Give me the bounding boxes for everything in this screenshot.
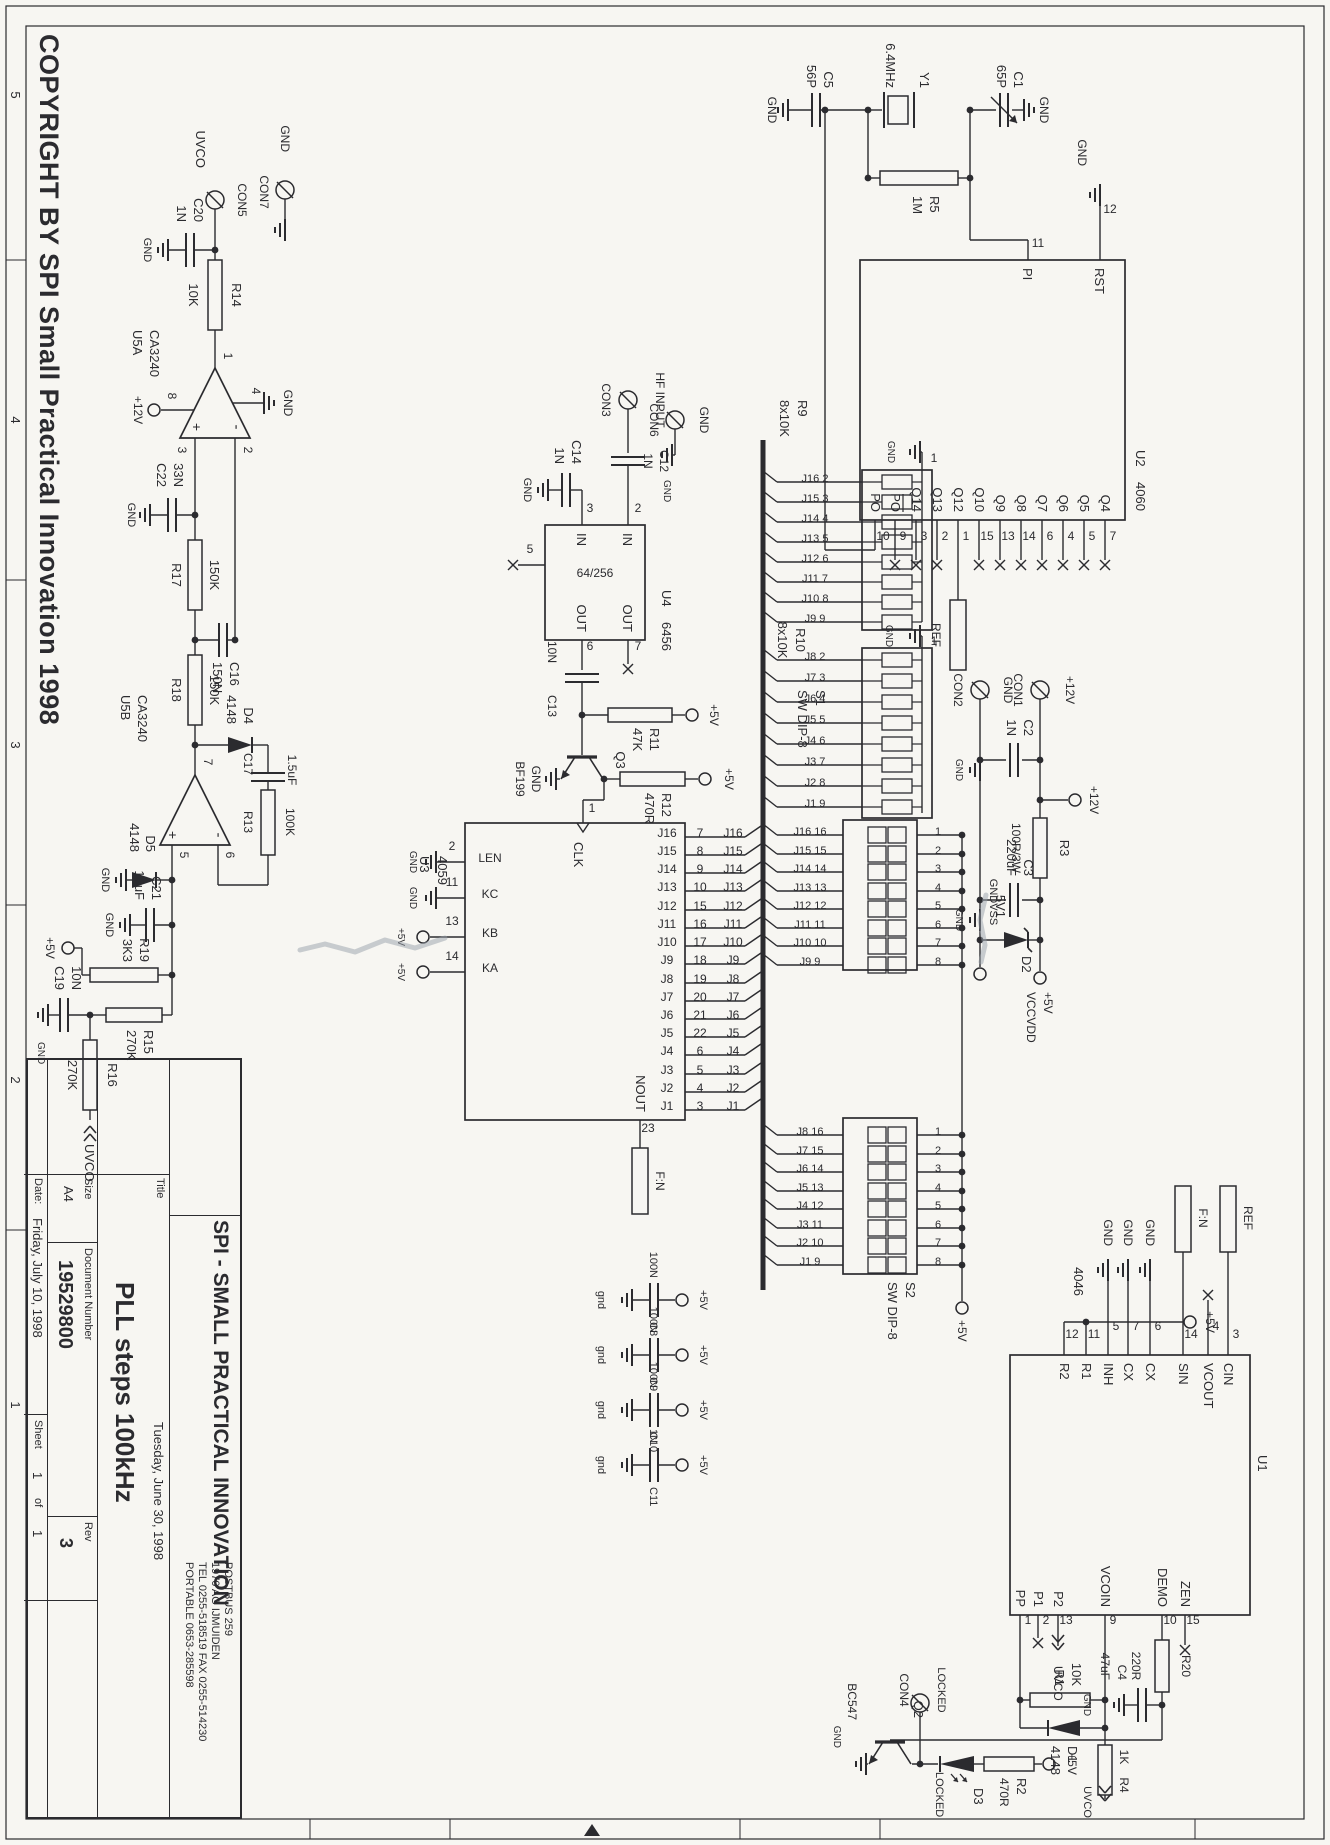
schematic-label: GND [831,1726,842,1748]
schematic-label: 33N [171,463,186,487]
schematic-label: 4148 [1048,1746,1063,1775]
schematic-label: 6 [935,1219,941,1231]
schematic-label: 4060 [1133,482,1148,511]
diode-D1 [1048,1720,1080,1736]
schematic-label: 1N [1004,719,1019,736]
junction-dot [169,922,176,929]
junction-dot [917,1761,924,1768]
part-R15 [106,1008,162,1022]
schematic-label: 3 [1233,1327,1240,1341]
part-FN-box-u1 [1175,1186,1191,1252]
schematic-label: C20 [191,198,206,222]
schematic-label: Q2 [911,1701,926,1718]
schematic-label: 1 [221,353,235,360]
s2-element [868,1183,886,1199]
schematic-label: +5V [1065,1753,1079,1775]
schematic-label: 150K [207,675,222,706]
schematic-label: J6 [661,1008,674,1022]
s1-element [868,938,886,954]
schematic-label: +12V [1087,786,1101,814]
schematic-label: C11 [647,1487,659,1506]
junction-dot [1159,1702,1166,1709]
schematic-label: J16 [657,826,677,840]
schematic-label: 1 [1025,1613,1032,1627]
schematic-label: J14 14 [793,863,826,875]
schematic-label: 7 [697,826,704,840]
size-value: A4 [61,1186,76,1202]
j-riser-diag [745,972,761,983]
diode-D4 [228,737,252,753]
schematic-label: 6 [1047,529,1054,543]
s2-element [888,1127,906,1143]
sheet-number: 1 [30,1472,45,1479]
schematic-label: Q10 [972,487,987,512]
schematic-label: C3 [1021,859,1036,876]
schematic-label: 2 [935,845,941,857]
schematic-label: C14 [569,440,584,464]
schematic-label: J8 [727,972,740,986]
schematic-label: 15 [693,899,707,913]
terminal-circle [148,404,160,416]
schematic-label: SW DIP-8 [885,1282,900,1340]
schematic-label: 3 [175,447,189,454]
docnum-value: 19529800 [53,1260,76,1349]
schematic-label: P2 [1051,1591,1066,1607]
schematic-label: 5 [527,542,534,556]
schematic-label: 3 [697,1099,704,1113]
schematic-label: 15 [980,529,994,543]
schematic-label: +5V [697,1345,709,1366]
schematic-label: J7 [661,990,674,1004]
schematic-label: P1 [1031,1591,1046,1607]
schematic-label: 220uF [1004,839,1019,876]
schematic-label: J6 [727,1008,740,1022]
junction-dot [579,712,586,719]
terminal-circle [417,966,429,978]
schematic-label: U5A [130,330,145,356]
schematic-label: 23 [641,1121,655,1135]
terminal-circle [676,1459,688,1471]
center-mark-triangle [584,1824,600,1836]
schematic-label: GND [1075,139,1089,166]
schematic-label: CON4 [897,1673,911,1707]
part-REF-box-u2 [950,600,966,670]
schematic-label: J2 10 [797,1237,824,1249]
scan-smudge [980,895,986,962]
s2-element [888,1164,906,1180]
j-riser-diag [745,1026,761,1037]
schematic-label: 1N [641,453,655,468]
schematic-label: 6 [697,1044,704,1058]
schematic-label: 6 [935,919,941,931]
schematic-label: 11 [1032,236,1045,250]
diode-D2 [1004,932,1028,948]
terminal-circle [1034,972,1046,984]
schematic-label: 5 [1089,529,1096,543]
schematic-label: 8 [935,956,941,968]
s1-element [888,901,906,917]
schematic-label: ZEN [1178,1581,1193,1607]
zener-wing [1028,948,1032,952]
schematic-label: KA [482,961,498,975]
schematic-label: 1 [931,451,938,465]
schematic-label: 10uF [132,870,147,900]
schematic-label: J10 [657,935,677,949]
schematic-label: D5 [143,835,158,852]
schematic-label: 1 [935,826,941,838]
part-FN-box-u3 [632,1148,648,1214]
schematic-label: 7 [935,1237,941,1249]
schematic-label: 12 [1065,1327,1079,1341]
schematic-label: 9 [900,529,907,543]
schematic-label: +5V [395,963,406,981]
schematic-label: GND [281,390,295,417]
schematic-label: Q8 [1014,495,1029,512]
schematic-label: 64/256 [577,566,614,580]
schematic-label: 1 [935,1126,941,1138]
schematic-label: GNDVSS [987,879,999,925]
schematic-label: 16 [693,917,707,931]
schematic-label: U1 [1255,1455,1270,1472]
schematic-label: D4 [241,707,256,724]
terminal-circle [62,942,74,954]
terminal-circle [417,931,429,943]
schematic-label: J11 11 [794,919,825,931]
junction-dot [192,637,199,644]
schematic-label: J12 [657,899,677,913]
schematic-label: gnd [595,1291,607,1309]
s1-element [868,883,886,899]
schematic-label: REF [1241,1206,1255,1230]
schematic-label: C21 [149,876,164,900]
schematic-label: 10 [876,529,890,543]
schematic-label: DEMO [1155,1568,1170,1607]
schematic-label: J12 6 [802,553,829,565]
junction-dot [977,757,984,764]
s1-element [888,883,906,899]
schematic-label: C13 [545,695,559,717]
schematic-label: 8 [935,1256,941,1268]
net-chevron [1052,1635,1058,1642]
schematic-label: 14 [1184,1327,1198,1341]
address-line2: 1970 AG IJMUIDEN [208,1562,221,1741]
schematic-label: GND [953,759,964,781]
schematic-label: J1 9 [805,798,826,810]
schematic-label: 2 [942,529,949,543]
schematic-landscape: Q47Q55Q64Q76Q814Q913Q1015Q121Q132Q143PO9… [0,0,1330,1845]
s2-element [888,1220,906,1236]
net-chevron [1052,1643,1058,1650]
part-R20 [1155,1640,1169,1692]
j-riser-diag [745,1099,761,1110]
printed-date: Tuesday, June 30, 1998 [151,1422,166,1560]
schematic-label: Q3 [613,751,628,768]
schematic-label: 1 [8,1401,23,1408]
schematic-label: GND [1121,1219,1135,1246]
schematic-label: 7 [935,937,941,949]
schematic-label: R12 [659,793,674,817]
junction-dot [1017,1697,1024,1704]
schematic-label: U2 [1133,450,1148,467]
schematic-label: J1 [661,1099,674,1113]
drawing-title: PLL steps 100kHz [109,1282,140,1503]
junction-dot [169,972,176,979]
schematic-label: 4046 [1071,1267,1086,1296]
part-R18 [188,655,202,725]
terminal-circle [956,1302,968,1314]
schematic-label: INH [1101,1363,1116,1385]
s2-element [868,1146,886,1162]
s1-element [868,920,886,936]
schematic-label: 13 [1001,529,1015,543]
schematic-label: 13 [1059,1613,1073,1627]
schematic-label: J13 5 [802,533,829,545]
schematic-label: 10N [69,966,84,990]
rev-value: 3 [55,1538,76,1548]
s1-element [868,864,886,880]
s1-element [888,938,906,954]
s2-element [868,1238,886,1254]
schematic-label: 2 [1043,1613,1050,1627]
schematic-label: C19 [52,966,67,990]
schematic-label: 56P [804,65,819,88]
net-chevron [1099,1786,1105,1793]
schematic-label: 4148 [224,695,239,724]
schematic-label: J9 9 [800,956,821,968]
schematic-label: 10K [186,283,201,306]
r10-element [882,653,912,667]
junction-dot [1083,1319,1090,1326]
schematic-label: PO [868,493,883,512]
schematic-label: +5V [697,1400,709,1421]
schematic-label: 7 [1110,529,1117,543]
schematic-label: 20 [693,990,707,1004]
j-riser-diag [745,917,761,928]
schematic-label: Q12 [951,487,966,512]
scanned-schematic-page: Q47Q55Q64Q76Q814Q913Q1015Q121Q132Q143PO9… [0,0,1330,1845]
schematic-label: 5 [1113,1319,1120,1333]
schematic-label: PI [1020,268,1035,280]
schematic-label: R1 [1079,1363,1094,1380]
rev-label: Rev [82,1522,94,1542]
schematic-label: C4 [1115,1665,1129,1681]
junction-dot [865,175,872,182]
schematic-label: J13 13 [793,882,826,894]
schematic-label: GND [529,766,543,793]
schematic-label: 6 [1155,1319,1162,1333]
schematic-label: 10 [1163,1613,1177,1627]
schematic-label: 6 [587,639,594,653]
schematic-label: Q14 [909,487,924,512]
r10-element [882,716,912,730]
schematic-label: OUT [574,605,589,633]
s2-element [888,1238,906,1254]
schematic-label: 1.5uF [285,755,299,786]
schematic-label: F:N [653,1171,667,1190]
terminal-circle [974,968,986,980]
sheet-total: 1 [30,1530,45,1537]
schematic-label: 4 [697,1081,704,1095]
junction-dot [865,107,872,114]
schematic-label: 4148 [127,823,142,852]
schematic-label: 65P [994,65,1009,88]
schematic-label: BF199 [513,761,527,797]
schematic-label: J11 7 [802,573,828,585]
schematic-label: J10 10 [793,937,826,949]
schematic-label: R13 [241,811,255,833]
schematic-label: +12V [1063,676,1077,704]
schematic-label: GND [1101,1219,1115,1246]
r9-element [882,475,912,489]
schematic-label: LOCKED [933,1772,945,1817]
schematic-label: C2 [1021,719,1036,736]
schematic-label: J15 [723,844,743,858]
schematic-label: 2 [935,1145,941,1157]
schematic-label: J10 [723,935,743,949]
schematic-label: 1N [174,205,189,222]
junction-dot [232,637,239,644]
schematic-label: RST [1092,268,1107,294]
schematic-label: 10K [1069,1663,1084,1686]
schematic-label: 8 [165,393,179,400]
s2-element [888,1183,906,1199]
schematic-label: R18 [169,678,184,702]
schematic-label: 22 [693,1026,707,1040]
schematic-label: 100N [647,1362,659,1388]
schematic-label: gnd [595,1346,607,1364]
schematic-label: J3 7 [805,756,826,768]
j-riser-diag [745,826,761,837]
schematic-label: J10 8 [802,593,829,605]
schematic-label: J14 [723,862,743,876]
schematic-label: S1 [813,690,828,706]
address-line4: PORTABLE 0653-285598 [182,1562,195,1741]
schematic-label: U5B [118,695,133,720]
schematic-label: CON2 [951,673,965,707]
junction-dot [1037,937,1044,944]
schematic-label: 100N [647,1252,659,1278]
schematic-label: J7 15 [797,1145,824,1157]
part-R5 [880,171,958,185]
schematic-label: U3 [417,856,432,873]
terminal-circle [676,1404,688,1416]
schematic-label: Q6 [1056,495,1071,512]
schematic-label: 19 [693,972,707,986]
schematic-label: J3 [727,1063,740,1077]
schematic-label: CON6 [647,403,661,437]
s1-element [868,901,886,917]
schematic-label: J9 [727,953,740,967]
schematic-label: R15 [141,1030,156,1054]
schematic-label: 3 [8,741,23,748]
schematic-label: J15 3 [802,493,829,505]
junction-dot [822,107,829,114]
schematic-label: Q9 [993,495,1008,512]
schematic-label: gnd [595,1456,607,1474]
part-R19 [90,968,158,982]
schematic-label: GND [661,480,672,502]
schematic-label: 3 [921,529,928,543]
schematic-label: 14 [445,949,459,963]
date-label: Date: [32,1178,44,1204]
diode-D3 [940,1756,974,1772]
schematic-label: F:N [1196,1208,1210,1227]
schematic-label: +5V [955,1320,969,1342]
schematic-label: J13 [657,880,677,894]
schematic-label: 220R [1129,1652,1143,1681]
schematic-label: 4 [935,882,941,894]
s2-element [868,1127,886,1143]
schematic-label: CON5 [235,183,249,217]
schematic-label: J7 [727,990,740,1004]
schematic-label: R4 [1117,1777,1131,1793]
schematic-label: R10 [793,628,808,652]
schematic-label: GND [1037,97,1051,124]
schematic-label: GND [1081,1694,1092,1716]
schematic-label: 3 [587,501,594,515]
schematic-label: 8 [697,844,704,858]
schematic-label: J8 2 [805,651,826,663]
s2-element [868,1257,886,1273]
schematic-label: CLK [571,842,586,868]
junction-dot [1037,757,1044,764]
schematic-label: J9 9 [805,613,826,625]
schematic-label: GND [103,913,115,938]
schematic-label: GND [99,868,111,893]
schematic-label: BC547 [845,1683,859,1720]
schematic-label: C1 [1011,71,1026,88]
schematic-label: CON3 [599,383,613,417]
schematic-label: + [189,423,205,431]
schematic-label: J1 9 [800,1256,821,1268]
j-riser-diag [745,1044,761,1055]
schematic-label: 2 [241,447,255,454]
schematic-label: 6456 [659,622,674,651]
schematic-label: 2 [635,501,642,515]
schematic-label: 5 [8,91,23,98]
schematic-label: 3 [935,863,941,875]
schematic-label: 13 [445,914,459,928]
schematic-label: GND [125,503,137,528]
schematic-label: J5 [727,1026,740,1040]
schematic-label: UVCO [193,130,208,168]
j-riser-diag [745,990,761,1001]
schematic-label: 8x10K [777,400,792,437]
part-R17 [188,540,202,610]
clk-wedge [577,823,589,832]
crystal-Y1 [888,96,908,124]
j-riser-diag [745,1063,761,1074]
junction-dot [192,742,199,749]
schematic-label: +12V [131,396,145,424]
part-R14 [208,260,222,330]
schematic-label: 150K [207,560,222,591]
schematic-label: 7 [635,639,642,653]
schematic-label: LEN [478,851,501,865]
schematic-label: R9 [795,400,810,417]
junction-dot [1102,1725,1109,1732]
schematic-label: J14 [657,862,677,876]
schematic-label: 4 [249,388,263,395]
schematic-label: 4059 [435,856,450,885]
schematic-label: GND [278,125,292,152]
part-R11 [608,708,672,722]
schematic-label: 47uF [1098,1653,1112,1680]
schematic-label: +5V [1041,992,1055,1014]
junction-dot [1037,897,1044,904]
schematic-label: 2 [8,1076,23,1083]
terminal-circle [686,709,698,721]
